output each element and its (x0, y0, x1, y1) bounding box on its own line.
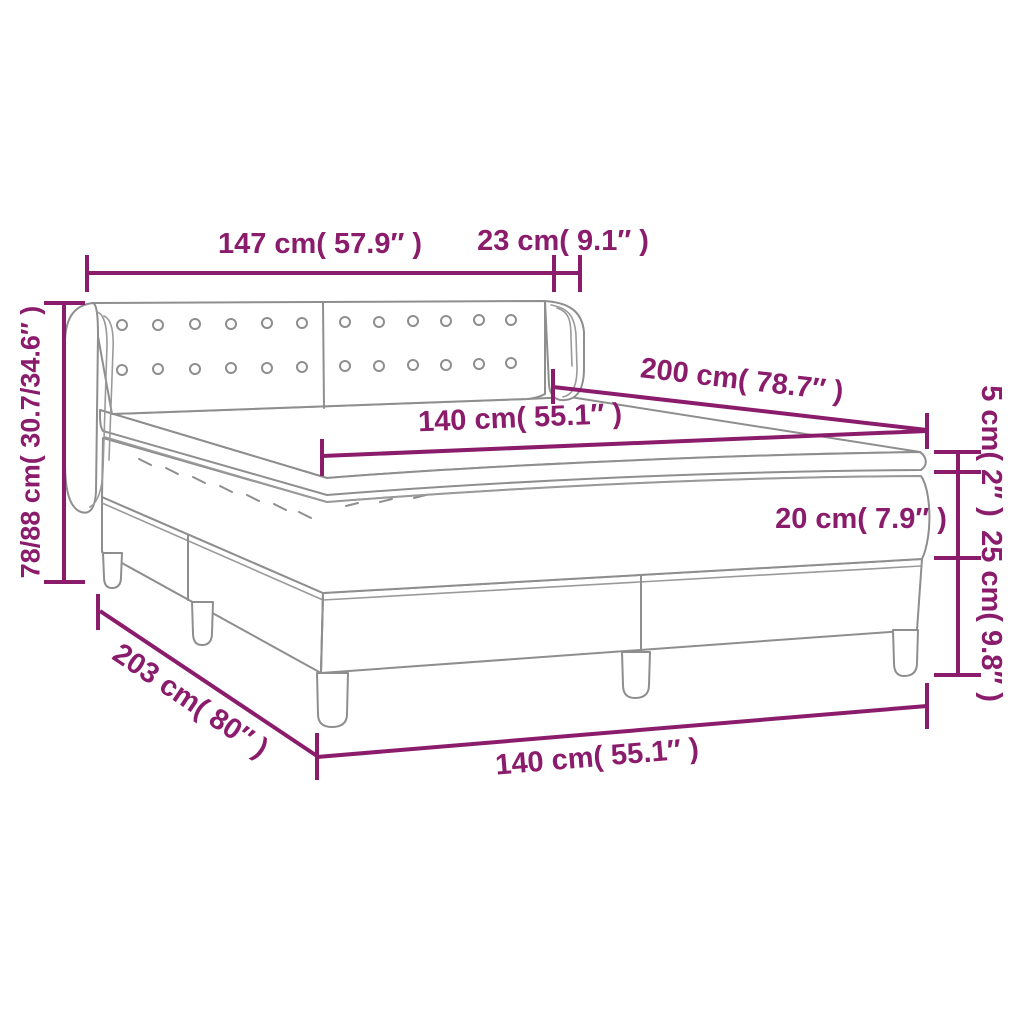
headboard-right-wing (543, 301, 584, 400)
dim-wing-depth: 23 cm( 9.1″ ) (477, 225, 649, 292)
bed-leg (622, 652, 650, 698)
left-wing-blade (65, 303, 98, 513)
bed-leg (317, 673, 348, 727)
bed-dimension-diagram: 147 cm( 57.9″ ) 23 cm( 9.1″ ) 78/88 cm( … (0, 0, 1024, 1024)
bed-leg (893, 630, 918, 676)
dim-frame-length-label: 203 cm( 80″ ) (107, 637, 274, 764)
dim-mattress-thickness-label: 20 cm( 7.9″ ) (775, 503, 947, 535)
bed-leg (103, 553, 122, 588)
dim-wing-depth-label: 23 cm( 9.1″ ) (477, 225, 649, 257)
diagram-canvas: 147 cm( 57.9″ ) 23 cm( 9.1″ ) 78/88 cm( … (0, 0, 1024, 1024)
dim-overall-height-label: 78/88 cm( 30.7/34.6″ ) (15, 306, 45, 579)
dim-topper-thickness-label: 5 cm( 2″ ) (975, 385, 1007, 517)
dim-base-height-label: 25 cm( 9.8″ ) (975, 530, 1007, 702)
dim-headboard-width-label: 147 cm( 57.9″ ) (218, 228, 422, 260)
headboard-center-seam (323, 302, 324, 408)
headboard-face (92, 301, 545, 414)
right-wing-blade (543, 301, 584, 400)
dim-frame-width: 140 cm( 55.1″ ) (317, 683, 927, 782)
bed-leg (192, 602, 213, 645)
